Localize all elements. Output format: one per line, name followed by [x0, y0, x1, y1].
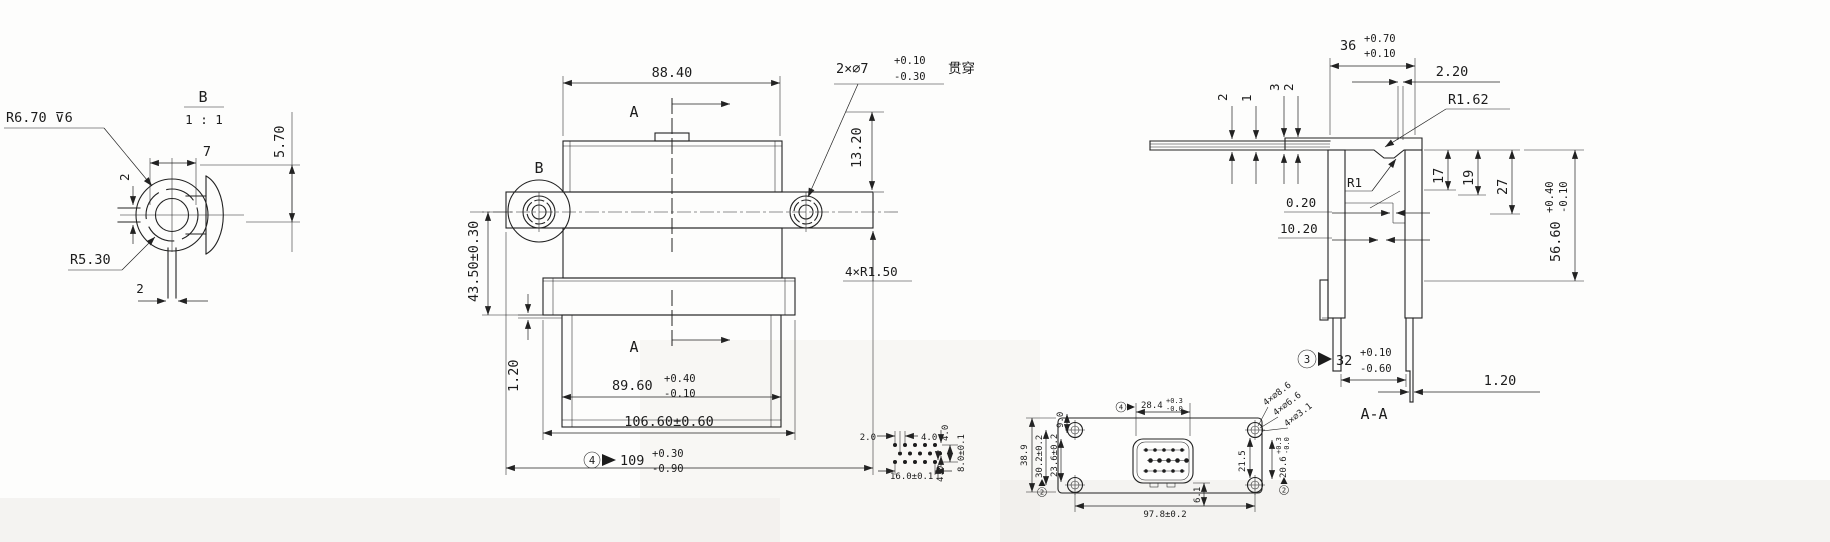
holes-h-label: 97.8±0.2	[1143, 510, 1186, 520]
bottom-offset-label: 6.1	[1193, 487, 1203, 503]
depth-dim-27: 27	[1495, 179, 1511, 195]
hole-callout-plus: +0.10	[894, 55, 926, 67]
insert-h-plus: +0.3	[1275, 437, 1283, 454]
dim-body-minus: -0.10	[664, 388, 696, 400]
dim-hole-offset-label: 13.20	[849, 127, 865, 168]
engineering-drawing: B 1 : 1 7 5.70 R6.70 ⊽6 2 R5.30 2	[0, 0, 1830, 542]
dim-top-minus: +0.10	[1364, 48, 1396, 60]
pin-dim-row-bottom: 4.0	[936, 466, 946, 482]
depth-dim-17: 17	[1431, 168, 1447, 184]
dim-wall-top-label: 2.20	[1436, 64, 1469, 80]
insert-w-flag-digit: 4	[1119, 404, 1123, 412]
dim-slot-width-label: 7	[203, 144, 211, 160]
dim-wall-bottom-label: 1.20	[1484, 373, 1517, 389]
layer-dim-3: 3	[1267, 83, 1282, 91]
insert-h-flag-digit: 2	[1282, 487, 1286, 495]
overall-height-label: 38.9	[1020, 444, 1030, 466]
radius-depth-callout: R6.70 ⊽6	[6, 110, 73, 126]
holes-v-label: 30.2±0.2	[1035, 435, 1045, 478]
dim-stem-label: 2	[136, 281, 144, 296]
dim-step-label: 1.20	[506, 359, 522, 392]
insert-h-base: 20.6	[1279, 456, 1289, 478]
section-label-top: A	[629, 103, 638, 121]
hole-offset-top-label: 9.0	[1056, 412, 1066, 428]
dim-opening-minus: -0.60	[1360, 363, 1392, 375]
radius-callout: R5.30	[70, 252, 111, 268]
pin-dim-offset: 2.0	[860, 433, 876, 443]
dim-step-a-label: 0.20	[1286, 195, 1316, 210]
pin-dim-row-span: 8.0±0.1	[957, 434, 967, 472]
right-v-label: 21.5	[1238, 450, 1248, 472]
pin-dim-pitch: 4.0	[921, 433, 937, 443]
dim-opening-base: 32	[1336, 353, 1352, 369]
cad-drawing-canvas: B 1 : 1 7 5.70 R6.70 ⊽6 2 R5.30 2	[0, 0, 1830, 542]
scan-shadow-center	[640, 340, 1040, 542]
inner-v-label: 23.6±0.2	[1050, 434, 1060, 477]
holes-v-flag-digit: 2	[1040, 489, 1044, 497]
dim-overall-base: 109	[620, 453, 644, 469]
corner-radius-callout: 4×R1.50	[845, 264, 898, 279]
dim-flange-label: 106.60±0.60	[624, 414, 713, 430]
fillet-inner-label: R1	[1347, 175, 1362, 190]
detail-b-marker: B	[534, 159, 543, 177]
insert-h-minus: -0.0	[1283, 437, 1291, 454]
dim-top-plus: +0.70	[1364, 33, 1396, 45]
insert-pins	[1143, 448, 1189, 473]
flag-triangle-icon	[602, 454, 616, 466]
layer-dim-1: 2	[1215, 93, 1230, 101]
opening-flag-digit: 3	[1304, 354, 1310, 366]
section-label-bottom: A	[629, 338, 638, 356]
dim-overall-plus: +0.30	[652, 448, 684, 460]
flag-triangle-icon	[1318, 352, 1332, 366]
detail-title: B	[198, 88, 207, 106]
dim-height-minus: -0.10	[1558, 181, 1570, 213]
fillet-outer-label: R1.62	[1448, 92, 1489, 108]
pin-dim-width: 16.0±0.1	[890, 472, 933, 482]
dim-top-width-label: 88.40	[652, 65, 693, 81]
dim-ear-height-label: 43.50±0.30	[466, 221, 482, 302]
depth-dim-19: 19	[1461, 170, 1477, 186]
hole-callout-minus: -0.30	[894, 71, 926, 83]
dim-overall-minus: -0.90	[652, 463, 684, 475]
hole-callout-base: 2×∅7	[836, 61, 869, 77]
detail-b-view: B 1 : 1 7 5.70 R6.70 ⊽6 2 R5.30 2	[4, 88, 300, 301]
flag-triangle-icon	[1127, 404, 1135, 411]
dim-body-base: 89.60	[612, 378, 653, 394]
insert-w-minus: -0.0	[1166, 405, 1183, 413]
dim-slot-thk-label: 2	[117, 173, 132, 181]
hole-callout-note: 贯穿	[948, 61, 975, 77]
dim-top-base: 36	[1340, 38, 1356, 54]
overall-flag-digit: 4	[589, 455, 595, 467]
section-title: A-A	[1360, 405, 1387, 423]
insert-w-base: 28.4	[1141, 401, 1163, 411]
dim-height-plus: +0.40	[1544, 181, 1556, 213]
pin-dim-row-top: 4.0	[941, 425, 951, 441]
insert-w-plus: +0.3	[1166, 397, 1183, 405]
section-aa-view: 36 +0.70 +0.10 2.20 R1.62 R1 2 1 3 2 0.2…	[1150, 33, 1584, 423]
detail-scale: 1 : 1	[185, 112, 223, 127]
dim-height-label: 5.70	[272, 125, 288, 158]
dim-height-base: 56.60	[1548, 221, 1564, 262]
dim-step-b-label: 10.20	[1280, 221, 1318, 236]
dim-opening-plus: +0.10	[1360, 347, 1392, 359]
scan-shadow-bottom-right	[1000, 480, 1830, 542]
dim-body-plus: +0.40	[664, 373, 696, 385]
layer-dim-2: 1	[1239, 94, 1254, 102]
layer-dim-4: 2	[1281, 83, 1296, 91]
